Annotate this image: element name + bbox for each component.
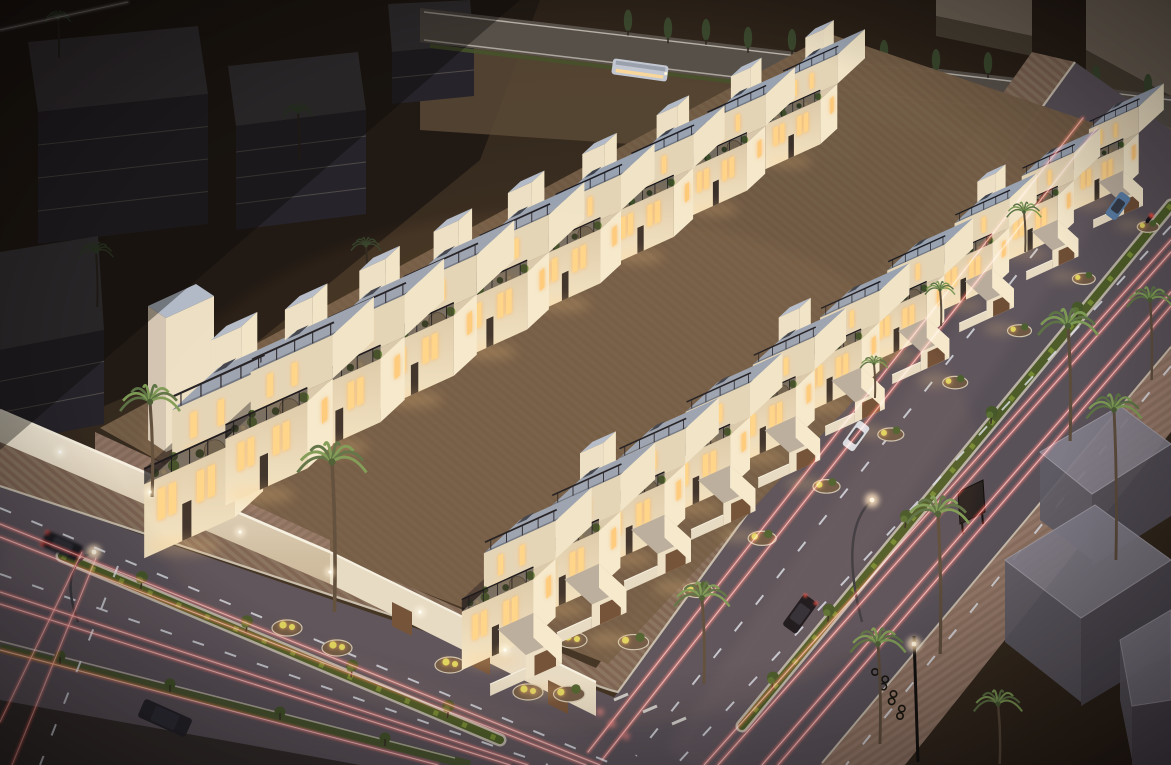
villa-compound-scene bbox=[0, 0, 1171, 765]
vignette bbox=[0, 0, 1171, 765]
architectural-render bbox=[0, 0, 1171, 765]
